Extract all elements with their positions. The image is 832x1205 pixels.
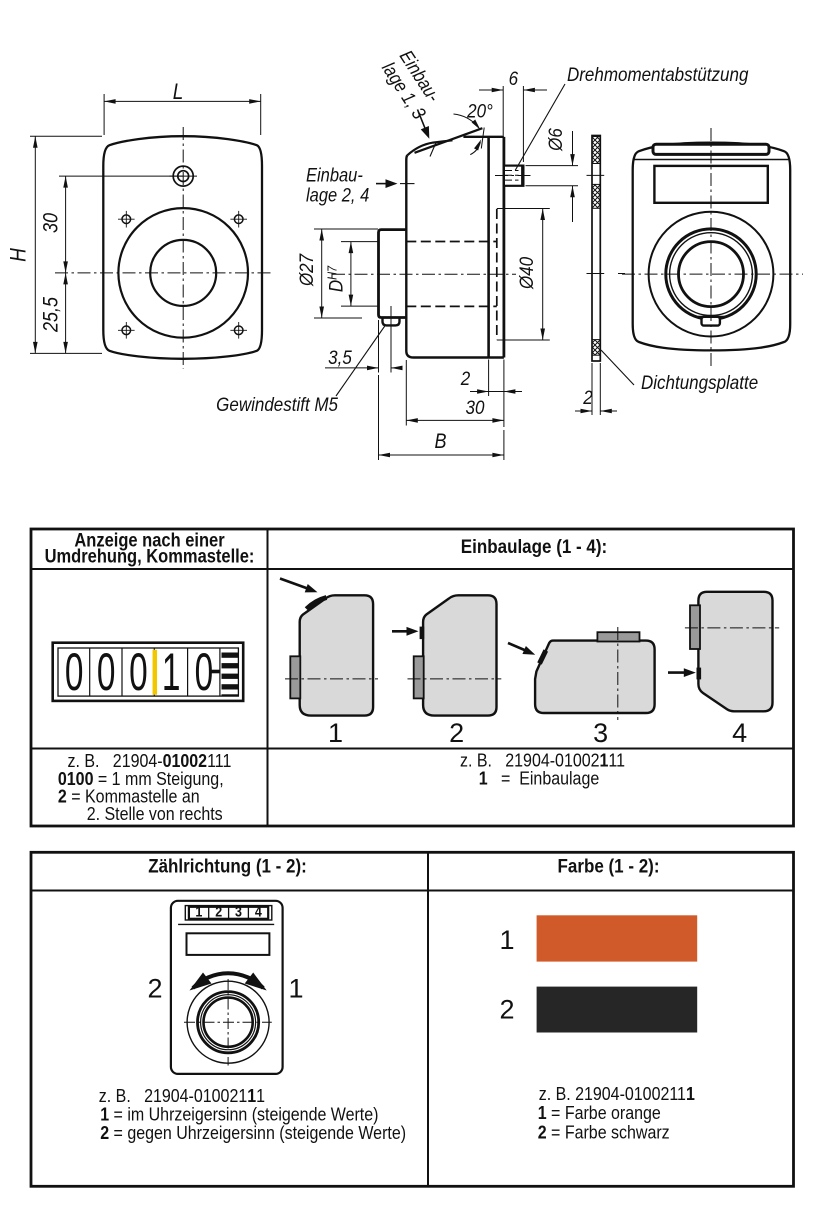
svg-text:Einbau-: Einbau-	[306, 164, 363, 185]
svg-text:2: 2	[499, 995, 514, 1025]
svg-text:2: 2	[582, 386, 592, 408]
svg-text:B: B	[434, 430, 446, 454]
svg-text:30: 30	[39, 213, 63, 233]
svg-text:2 = Farbe schwarz: 2 = Farbe schwarz	[538, 1121, 670, 1142]
svg-text:2: 2	[460, 367, 470, 389]
svg-text:25,5: 25,5	[39, 297, 63, 333]
svg-text:Zählrichtung (1 - 2):: Zählrichtung (1 - 2):	[148, 854, 307, 876]
svg-text:6: 6	[509, 67, 519, 89]
svg-text:0: 0	[97, 643, 116, 702]
svg-text:1: 1	[328, 718, 343, 748]
svg-text:Gewindestift M5: Gewindestift M5	[216, 393, 339, 415]
svg-text:2 = gegen Uhrzeigersinn (steig: 2 = gegen Uhrzeigersinn (steigende Werte…	[100, 1122, 406, 1143]
svg-text:Dichtungsplatte: Dichtungsplatte	[641, 371, 758, 393]
svg-text:1 = Farbe orange: 1 = Farbe orange	[538, 1102, 661, 1123]
svg-text:1: 1	[288, 974, 303, 1004]
svg-text:1 = Einbaulage: 1 = Einbaulage	[479, 767, 599, 788]
svg-text:30: 30	[466, 396, 486, 418]
svg-text:2. Stelle von rechts: 2. Stelle von rechts	[87, 803, 223, 824]
svg-text:1: 1	[195, 903, 202, 919]
svg-text:20°: 20°	[466, 99, 493, 121]
svg-text:2: 2	[147, 974, 162, 1004]
svg-text:1: 1	[499, 925, 514, 955]
svg-text:0: 0	[65, 643, 84, 702]
svg-text:Umdrehung, Kommastelle:: Umdrehung, Kommastelle:	[45, 545, 255, 566]
svg-text:2: 2	[215, 903, 222, 919]
svg-text:Farbe (1 - 2):: Farbe (1 - 2):	[557, 854, 659, 876]
svg-text:Einbaulage (1 - 4):: Einbaulage (1 - 4):	[461, 535, 607, 557]
svg-text:3,5: 3,5	[328, 346, 352, 368]
svg-text:Ø40: Ø40	[515, 256, 537, 290]
svg-text:3: 3	[235, 903, 242, 919]
svg-text:2: 2	[449, 718, 464, 748]
svg-text:Drehmomentabstützung: Drehmomentabstützung	[567, 63, 749, 85]
svg-text:4: 4	[732, 718, 747, 748]
svg-text:L: L	[173, 80, 184, 105]
svg-text:Ø27: Ø27	[295, 253, 317, 287]
svg-text:lage 2, 4: lage 2, 4	[306, 184, 369, 205]
svg-text:H: H	[6, 248, 31, 262]
svg-text:4: 4	[255, 903, 262, 919]
svg-text:3: 3	[593, 718, 608, 748]
svg-text:DH7: DH7	[324, 265, 346, 292]
svg-text:0: 0	[129, 643, 148, 702]
svg-text:Ø6: Ø6	[544, 127, 566, 151]
svg-text:1: 1	[162, 643, 181, 702]
